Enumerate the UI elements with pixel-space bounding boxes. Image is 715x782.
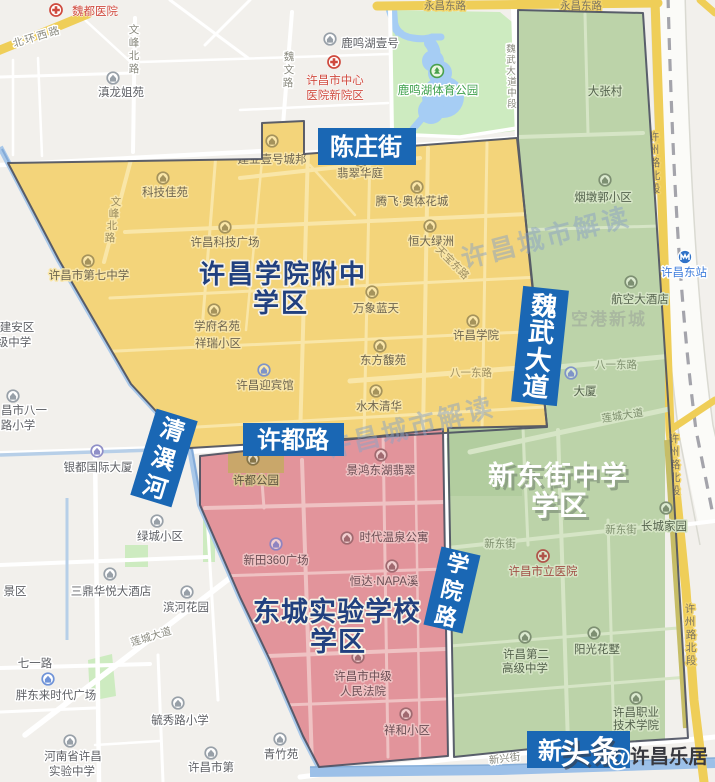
svg-text:文: 文 <box>284 63 295 76</box>
svg-text:东城实验学校: 东城实验学校 <box>253 596 421 627</box>
svg-text:学区: 学区 <box>253 288 309 318</box>
svg-text:许昌职业: 许昌职业 <box>613 706 659 719</box>
svg-text:空港新城: 空港新城 <box>571 309 647 329</box>
svg-text:祥和小区: 祥和小区 <box>384 723 430 737</box>
svg-text:道: 道 <box>521 370 550 403</box>
svg-text:道: 道 <box>507 76 517 88</box>
svg-text:八一东路: 八一东路 <box>595 358 637 371</box>
svg-text:景鸿东湖翡翠: 景鸿东湖翡翠 <box>347 463 416 477</box>
svg-text:毓秀路小学: 毓秀路小学 <box>151 713 209 727</box>
svg-text:许昌东站: 许昌东站 <box>661 265 707 279</box>
svg-text:武: 武 <box>506 54 516 66</box>
svg-text:实验中学: 实验中学 <box>49 764 95 778</box>
svg-text:建安区: 建安区 <box>0 320 34 334</box>
svg-text:滇龙姐苑: 滇龙姐苑 <box>98 85 144 99</box>
svg-text:滨河花园: 滨河花园 <box>163 600 209 614</box>
svg-text:大厦: 大厦 <box>574 384 597 398</box>
svg-text:昌市八一: 昌市八一 <box>1 403 47 417</box>
svg-text:许昌市立医院: 许昌市立医院 <box>509 564 578 578</box>
svg-text:科技佳苑: 科技佳苑 <box>142 185 188 199</box>
svg-text:长城家园: 长城家园 <box>641 519 687 533</box>
svg-text:路: 路 <box>105 231 116 244</box>
svg-text:段: 段 <box>507 98 517 110</box>
svg-text:技术学院: 技术学院 <box>613 718 659 732</box>
svg-text:路小学: 路小学 <box>1 418 36 432</box>
svg-text:青竹苑: 青竹苑 <box>264 747 299 761</box>
svg-text:高级中学: 高级中学 <box>502 661 548 675</box>
svg-text:许昌市第七中学: 许昌市第七中学 <box>49 268 130 282</box>
svg-text:三鼎华悦大酒店: 三鼎华悦大酒店 <box>71 584 152 598</box>
svg-text:阳光花墅: 阳光花墅 <box>574 642 620 656</box>
svg-text:学府名苑: 学府名苑 <box>194 319 240 333</box>
svg-text:医院新院区: 医院新院区 <box>306 88 364 102</box>
svg-text:新东街中学: 新东街中学 <box>488 460 628 491</box>
svg-text:路: 路 <box>129 62 140 75</box>
svg-text:许昌市中心: 许昌市中心 <box>306 73 364 87</box>
svg-text:新田360广场: 新田360广场 <box>243 553 308 567</box>
svg-text:鹿鸣湖壹号: 鹿鸣湖壹号 <box>341 36 399 50</box>
svg-text:路: 路 <box>283 76 294 89</box>
svg-text:腾飞·奥体花城: 腾飞·奥体花城 <box>376 194 449 208</box>
svg-text:峰: 峰 <box>129 37 140 49</box>
svg-text:学区: 学区 <box>310 626 366 657</box>
svg-text:魏: 魏 <box>284 50 295 63</box>
svg-text:许昌市中级: 许昌市中级 <box>334 669 392 683</box>
svg-text:许昌科技广场: 许昌科技广场 <box>191 235 260 249</box>
svg-text:许昌市第: 许昌市第 <box>188 760 234 774</box>
svg-text:时代温泉公寓: 时代温泉公寓 <box>360 530 429 544</box>
svg-text:文: 文 <box>111 195 122 208</box>
svg-text:水木清华: 水木清华 <box>356 399 402 413</box>
svg-text:大: 大 <box>506 65 516 77</box>
svg-text:景区: 景区 <box>4 585 27 598</box>
svg-text:万象蓝天: 万象蓝天 <box>353 302 399 315</box>
svg-text:州: 州 <box>685 616 696 628</box>
svg-text:许昌乐居: 许昌乐居 <box>630 745 708 768</box>
svg-text:魏都医院: 魏都医院 <box>72 4 118 18</box>
svg-text:学区: 学区 <box>531 489 587 521</box>
svg-text:许都路: 许都路 <box>257 426 330 454</box>
svg-text:大张村: 大张村 <box>588 84 623 98</box>
svg-text:人民法院: 人民法院 <box>340 684 386 698</box>
svg-text:八一东路: 八一东路 <box>450 366 492 379</box>
svg-text:@: @ <box>606 742 631 772</box>
svg-text:许昌学院附中: 许昌学院附中 <box>199 259 367 289</box>
svg-text:中: 中 <box>507 87 517 99</box>
svg-text:河南省许昌: 河南省许昌 <box>44 749 102 763</box>
svg-text:许昌第二: 许昌第二 <box>503 647 549 661</box>
svg-text:永昌东路: 永昌东路 <box>424 0 466 12</box>
svg-text:级中学: 级中学 <box>0 335 31 349</box>
svg-text:许都公园: 许都公园 <box>233 474 279 487</box>
svg-text:峰: 峰 <box>109 208 120 220</box>
svg-text:航空大酒店: 航空大酒店 <box>611 292 669 306</box>
svg-text:祥瑞小区: 祥瑞小区 <box>195 336 241 350</box>
svg-text:文: 文 <box>129 23 140 36</box>
svg-text:魏: 魏 <box>506 43 516 55</box>
svg-text:北: 北 <box>686 642 697 654</box>
svg-text:新东街: 新东街 <box>484 537 516 550</box>
svg-text:银都国际大厦: 银都国际大厦 <box>64 460 133 474</box>
svg-text:北: 北 <box>107 220 118 232</box>
svg-text:北: 北 <box>129 50 140 62</box>
svg-text:段: 段 <box>686 654 697 667</box>
svg-text:许昌学院: 许昌学院 <box>453 328 499 342</box>
svg-text:胖东来时代广场: 胖东来时代广场 <box>16 688 97 702</box>
svg-text:路: 路 <box>686 628 697 641</box>
svg-text:新东街: 新东街 <box>605 523 637 536</box>
svg-text:陈庄街: 陈庄街 <box>330 133 402 161</box>
svg-text:七一路: 七一路 <box>18 656 53 670</box>
svg-text:翡翠华庭: 翡翠华庭 <box>337 166 383 180</box>
svg-text:绿城小区: 绿城小区 <box>137 529 183 543</box>
svg-text:恒达·NAPA溪: 恒达·NAPA溪 <box>350 574 419 588</box>
svg-text:恒大绿洲: 恒大绿洲 <box>408 234 454 248</box>
svg-text:许昌迎宾馆: 许昌迎宾馆 <box>236 378 294 392</box>
svg-text:鹿鸣湖体育公园: 鹿鸣湖体育公园 <box>398 83 479 97</box>
svg-text:许: 许 <box>685 602 696 615</box>
svg-text:东方馥苑: 东方馥苑 <box>360 353 406 367</box>
